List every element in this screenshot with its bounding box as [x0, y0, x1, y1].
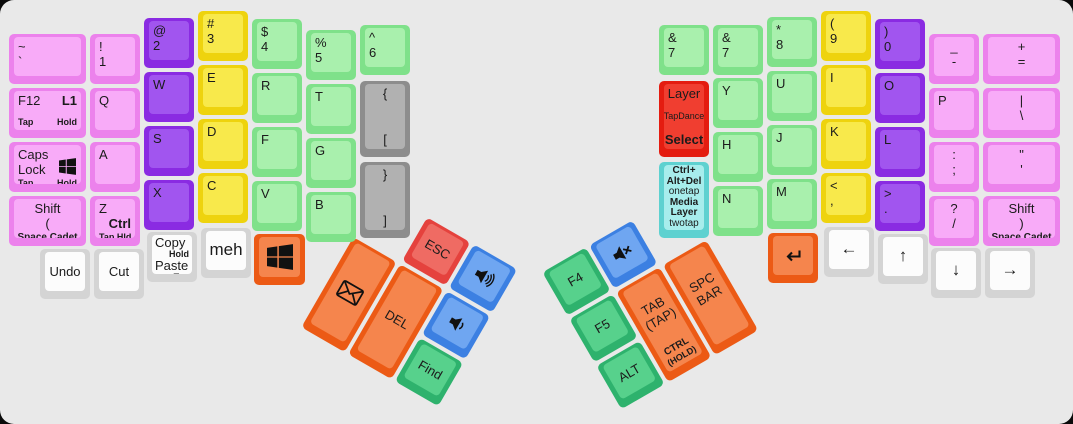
- key-o[interactable]: O: [875, 73, 925, 123]
- key-label: Ctrl: [109, 216, 131, 231]
- key-label: Shift: [1008, 201, 1034, 216]
- key-label-line: ALT: [612, 358, 647, 387]
- key-label: Tap: [18, 117, 33, 128]
- key-label: -: [952, 54, 956, 69]
- key-label-line: ←: [833, 239, 865, 259]
- key-label: +: [1018, 39, 1026, 54]
- key-exclamation-1[interactable]: !1: [90, 34, 140, 84]
- key-label-line: S: [153, 131, 185, 146]
- key-cut[interactable]: Cut: [94, 249, 144, 299]
- key-label: [: [383, 132, 387, 147]
- mail-icon: [331, 273, 369, 311]
- key-k[interactable]: K: [821, 119, 871, 169]
- key-label-line: 4: [261, 39, 293, 54]
- key-label: ↓: [952, 260, 961, 280]
- key-label-line: DEL: [379, 305, 414, 334]
- key-label: E: [207, 70, 216, 85]
- key-label-line: ↓: [940, 260, 972, 280]
- windows-icon: [59, 158, 76, 175]
- key-label: S: [153, 131, 162, 146]
- key-label-line: I: [830, 70, 862, 85]
- key-label-line: meh: [210, 240, 242, 260]
- key-label-line: Find: [413, 355, 448, 384]
- key-amp-7[interactable]: &7: [713, 25, 763, 75]
- key-label-line: [437, 305, 477, 342]
- key-label: .: [884, 201, 888, 216]
- key-label-line: Ctrl+: [667, 166, 701, 177]
- key-label-line: 6: [369, 45, 401, 60]
- key-label-line: ^: [369, 30, 401, 45]
- key-label-line: :: [938, 147, 970, 162]
- key-left-brace-bracket[interactable]: {[: [360, 81, 410, 157]
- key-hash-3[interactable]: #3: [198, 11, 248, 61]
- enter-icon: [781, 244, 805, 268]
- key-label: ~: [18, 39, 26, 54]
- key-label-line: K: [830, 124, 862, 139]
- key-asterisk-8[interactable]: *8: [767, 17, 817, 67]
- key-label-line: 5: [315, 50, 347, 65]
- key-label-line: Copy: [155, 236, 189, 250]
- key-label: 4: [261, 39, 268, 54]
- key-label: Caps: [18, 147, 48, 162]
- key-label: T: [315, 89, 323, 104]
- key-label-line: ": [992, 147, 1051, 162]
- key-label-line: [329, 272, 371, 312]
- key-label: }: [383, 167, 387, 182]
- key-label: Q: [99, 93, 109, 108]
- key-label: 2: [153, 38, 160, 53]
- key-f[interactable]: F: [252, 127, 302, 177]
- key-label: G: [315, 143, 325, 158]
- key-h[interactable]: H: [713, 132, 763, 182]
- key-u[interactable]: U: [767, 71, 817, 121]
- key-label: 6: [369, 45, 376, 60]
- key-label-line: Select: [668, 132, 700, 147]
- key-label-line: Undo: [49, 264, 81, 279]
- key-label-line: →: [994, 260, 1026, 280]
- key-label-line: twotap: [667, 219, 701, 230]
- key-label: Tap: [18, 178, 33, 184]
- key-p[interactable]: P: [929, 88, 979, 138]
- key-label: [722, 320, 733, 335]
- key-label: :: [952, 147, 956, 162]
- key-label-line: #: [207, 16, 239, 31]
- key-label: Space Cadet: [17, 232, 77, 238]
- key-label: ALT: [616, 361, 643, 386]
- key-label: Space Cadet: [991, 232, 1051, 238]
- key-label: {: [383, 86, 387, 101]
- key-label-line: H: [722, 137, 754, 152]
- key-label-line: Tap Hld: [99, 232, 131, 238]
- key-label-line: (: [18, 216, 77, 231]
- key-label-line: !: [99, 39, 131, 54]
- key-label-line: N: [722, 191, 754, 206]
- key-r[interactable]: R: [252, 73, 302, 123]
- key-label-line: .: [884, 201, 916, 216]
- key-d[interactable]: D: [198, 119, 248, 169]
- key-y[interactable]: Y: [713, 78, 763, 128]
- key-label-line: [464, 258, 504, 295]
- key-label: %: [315, 35, 327, 50]
- key-j[interactable]: J: [767, 125, 817, 175]
- key-amp-7-inner[interactable]: &7: [659, 25, 709, 75]
- key-label: ←: [841, 239, 858, 259]
- key-right-brace-bracket[interactable]: }]: [360, 162, 410, 238]
- key-label-line: >: [884, 186, 916, 201]
- key-label: Y: [722, 83, 731, 98]
- key-label-line: Space Cadet: [18, 232, 77, 238]
- key-percent-5[interactable]: %5: [306, 30, 356, 80]
- key-label: D: [207, 124, 216, 139]
- key-label-line: -: [938, 54, 970, 69]
- key-label-line: Space Cadet: [992, 232, 1051, 238]
- key-label: Undo: [49, 264, 80, 279]
- key-label: !: [99, 39, 103, 54]
- key-label: ?: [950, 201, 957, 216]
- key-label-line: (: [830, 16, 862, 31]
- key-copy-paste[interactable]: CopyHoldPasteTap: [147, 232, 197, 282]
- key-label: ↑: [899, 246, 908, 266]
- key-n[interactable]: N: [713, 186, 763, 236]
- key-label: 7: [722, 45, 729, 60]
- key-l[interactable]: L: [875, 127, 925, 177]
- key-label-line: ESC: [420, 235, 455, 264]
- key-label-line: A: [99, 147, 131, 162]
- key-label-line: 2: [153, 38, 185, 53]
- key-win-left[interactable]: [254, 234, 305, 285]
- key-label: >: [884, 186, 892, 201]
- key-label-line: B: [315, 197, 347, 212]
- key-label-line: T: [315, 89, 347, 104]
- key-label: _: [950, 39, 957, 54]
- key-label-line: &: [722, 30, 754, 45]
- key-label-line: <: [830, 178, 862, 193]
- key-label: `: [18, 54, 22, 69]
- key-label-line: +: [992, 39, 1051, 54]
- key-label: #: [207, 16, 214, 31]
- key-label-line: |: [992, 93, 1051, 108]
- key-capslock-win[interactable]: CapsLockTapHold: [9, 142, 86, 192]
- key-label-line: V: [261, 186, 293, 201]
- key-label-line: [777, 244, 809, 268]
- key-label: Tap: [174, 273, 189, 274]
- key-label: =: [1018, 54, 1026, 69]
- key-caret-6[interactable]: ^6: [360, 25, 410, 75]
- windows-icon: [267, 244, 293, 270]
- key-label: Hold: [57, 178, 77, 184]
- key-label: &: [668, 30, 677, 45]
- mute-icon: [606, 236, 639, 269]
- key-label-line: F4: [558, 265, 593, 294]
- key-label: I: [830, 70, 834, 85]
- key-label: 5: [315, 50, 322, 65]
- key-w[interactable]: W: [144, 72, 194, 122]
- key-label: P: [938, 93, 947, 108]
- key-label-line: Layer: [668, 86, 700, 101]
- key-arrow-left[interactable]: ←: [824, 227, 874, 277]
- key-label-line: ;: [938, 162, 970, 177]
- key-label-line: ': [992, 162, 1051, 177]
- key-greater-period[interactable]: >.: [875, 181, 925, 231]
- key-label-line: [710, 313, 745, 342]
- key-label: M: [776, 184, 787, 199]
- key-label: ]: [383, 213, 387, 228]
- key-label: 8: [776, 37, 783, 52]
- key-label-line: F5: [585, 311, 620, 340]
- key-label: ESC: [422, 236, 453, 263]
- key-label-line: 3: [207, 31, 239, 46]
- key-label-line: 0: [884, 39, 916, 54]
- key-label-line: Q: [99, 93, 131, 108]
- key-label: 0: [884, 39, 891, 54]
- key-label-line: ~: [18, 39, 77, 54]
- key-arrow-down[interactable]: ↓: [931, 248, 981, 298]
- key-label: \: [1020, 108, 1024, 123]
- key-rparen-0[interactable]: )0: [875, 19, 925, 69]
- key-undo[interactable]: Undo: [40, 249, 90, 299]
- key-label: Shift: [34, 201, 60, 216]
- key-label: F5: [592, 316, 613, 337]
- key-label: /: [952, 216, 956, 231]
- key-label-line: E: [207, 70, 239, 85]
- key-b[interactable]: B: [306, 192, 356, 242]
- key-label-line: Paste: [155, 259, 189, 273]
- key-layer-tapdance-select[interactable]: LayerTapDanceSelect: [659, 81, 709, 157]
- key-label-line: `: [18, 54, 77, 69]
- key-label: |: [1020, 93, 1023, 108]
- key-label-line: Shift: [992, 201, 1051, 216]
- key-label: ): [1019, 216, 1023, 231]
- key-label-line: R: [261, 78, 293, 93]
- key-label: 3: [207, 31, 214, 46]
- key-quote[interactable]: "': [983, 142, 1060, 192]
- key-label: Copy: [155, 236, 185, 250]
- key-label-line: C: [207, 178, 239, 193]
- key-label-line: TapDance: [668, 111, 700, 122]
- key-label-line: 9: [830, 31, 862, 46]
- key-arrow-right[interactable]: →: [985, 248, 1035, 298]
- key-label: Cut: [109, 264, 129, 279]
- key-label: @: [153, 23, 166, 38]
- key-label-line: Z: [99, 201, 131, 216]
- key-enter[interactable]: [768, 233, 818, 283]
- key-label-line: [602, 234, 642, 271]
- key-label-line: O: [884, 78, 916, 93]
- key-label: (: [45, 216, 49, 231]
- key-colon-semicolon[interactable]: :;: [929, 142, 979, 192]
- key-underscore-minus[interactable]: _-: [929, 34, 979, 84]
- key-label-line: Ctrl: [99, 216, 131, 231]
- key-label-line: Tap: [155, 273, 189, 274]
- key-label-line: $: [261, 24, 293, 39]
- key-label: O: [884, 78, 894, 93]
- key-label: F12: [18, 93, 40, 108]
- key-q[interactable]: Q: [90, 88, 140, 138]
- key-question-slash[interactable]: ?/: [929, 196, 979, 246]
- key-label: Paste: [155, 259, 188, 273]
- key-label-line: &: [668, 30, 700, 45]
- key-label: F4: [565, 269, 586, 290]
- key-label: Tap Hld: [99, 232, 131, 238]
- key-label-line: @: [153, 23, 185, 38]
- key-label: Z: [99, 201, 107, 216]
- key-label: ,: [830, 193, 834, 208]
- key-label: L1: [62, 93, 77, 108]
- key-m[interactable]: M: [767, 179, 817, 229]
- key-label-line: ?: [938, 201, 970, 216]
- key-label-line: J: [776, 130, 808, 145]
- key-arrow-up[interactable]: ↑: [878, 234, 928, 284]
- key-label-line: \: [992, 108, 1051, 123]
- key-label-line: TapHold: [18, 178, 77, 184]
- key-label: Find: [416, 357, 446, 383]
- key-label: 9: [830, 31, 837, 46]
- key-label: K: [830, 124, 839, 139]
- key-t[interactable]: T: [306, 84, 356, 134]
- key-label: TapDance: [664, 111, 704, 122]
- key-label: 7: [668, 45, 675, 60]
- key-label-line: ↑: [887, 246, 919, 266]
- key-label-line: 7: [722, 45, 754, 60]
- key-label: ): [884, 24, 888, 39]
- key-label: F: [261, 132, 269, 147]
- key-plus-equals[interactable]: +=: [983, 34, 1060, 84]
- key-label-line: L: [884, 132, 916, 147]
- key-label: DEL: [382, 307, 412, 333]
- key-e[interactable]: E: [198, 65, 248, 115]
- key-pipe-backslash[interactable]: |\: [983, 88, 1060, 138]
- key-label-line: /: [938, 216, 970, 231]
- key-label: B: [315, 197, 324, 212]
- key-label-line: %: [315, 35, 347, 50]
- key-label: L: [884, 132, 891, 147]
- key-label: twotap: [669, 219, 698, 230]
- key-label: Ctrl+: [672, 166, 695, 177]
- key-label: (: [830, 16, 834, 31]
- key-label: &: [722, 30, 731, 45]
- key-v[interactable]: V: [252, 181, 302, 231]
- key-label-line: ): [884, 24, 916, 39]
- key-label-line: TapHold: [18, 117, 77, 128]
- key-label-line: F12L1: [18, 93, 77, 108]
- key-g[interactable]: G: [306, 138, 356, 188]
- key-at-2[interactable]: @2: [144, 18, 194, 68]
- key-label-line: U: [776, 76, 808, 91]
- key-c[interactable]: C: [198, 173, 248, 223]
- key-label: C: [207, 178, 216, 193]
- key-left-shift[interactable]: Shift(Space Cadet: [9, 196, 86, 246]
- key-label: <: [830, 178, 838, 193]
- key-label: Layer: [668, 86, 701, 101]
- key-label-line: {: [369, 86, 401, 101]
- key-label-line: 1: [99, 54, 131, 69]
- key-label-line: [: [369, 132, 401, 147]
- key-label-line: F: [261, 132, 293, 147]
- key-label: R: [261, 78, 270, 93]
- key-label-line: Cut: [103, 264, 135, 279]
- key-label-line: Y: [722, 83, 754, 98]
- key-i[interactable]: I: [821, 65, 871, 115]
- key-label-line: Shift: [18, 201, 77, 216]
- key-x[interactable]: X: [144, 180, 194, 230]
- key-label-line: P: [938, 93, 970, 108]
- key-label-line: =: [992, 54, 1051, 69]
- key-label: →: [1002, 260, 1019, 280]
- key-label-line: G: [315, 143, 347, 158]
- key-label: V: [261, 186, 270, 201]
- key-label: ;: [952, 162, 956, 177]
- key-s[interactable]: S: [144, 126, 194, 176]
- key-label-line: }: [369, 167, 401, 182]
- key-label: ': [1020, 162, 1022, 177]
- key-label: ": [1019, 147, 1024, 162]
- key-label-line: W: [153, 77, 185, 92]
- key-label: J: [776, 130, 783, 145]
- key-label: *: [776, 22, 781, 37]
- key-label-line: _: [938, 39, 970, 54]
- key-label: $: [261, 24, 268, 39]
- key-f12-l1[interactable]: F12L1TapHold: [9, 88, 86, 138]
- key-label-line: ,: [830, 193, 862, 208]
- key-label: Select: [665, 132, 703, 147]
- key-less-comma[interactable]: <,: [821, 173, 871, 223]
- key-label-line: [263, 244, 296, 270]
- key-ctrl-alt-del-media-layer[interactable]: Ctrl+Alt+DelonetapMediaLayertwotap: [659, 162, 709, 238]
- key-label-line: 7: [668, 45, 700, 60]
- key-z-ctrl[interactable]: ZCtrlTap Hld: [90, 196, 140, 246]
- key-label: Lock: [18, 162, 45, 177]
- key-label: W: [153, 77, 165, 92]
- key-label-line: D: [207, 124, 239, 139]
- vol-up-icon: [468, 260, 501, 293]
- key-label-line: ]: [369, 213, 401, 228]
- key-label-line: *: [776, 22, 808, 37]
- key-right-shift[interactable]: Shift)Space Cadet: [983, 196, 1060, 246]
- key-label: U: [776, 76, 785, 91]
- key-label-line: 8: [776, 37, 808, 52]
- keyboard-layout-board: ESCDELFind F4F5TAB(TAP)CTRL(HOLD)SPCBAR …: [0, 0, 1073, 424]
- key-label-line: X: [153, 185, 185, 200]
- key-label-line: M: [776, 184, 808, 199]
- key-label: ^: [369, 30, 375, 45]
- key-label: 1: [99, 54, 106, 69]
- key-label: Hold: [57, 117, 77, 128]
- key-label: A: [99, 147, 108, 162]
- key-dollar-4[interactable]: $4: [252, 19, 302, 69]
- key-label: N: [722, 191, 731, 206]
- key-label: X: [153, 185, 162, 200]
- key-label: meh: [209, 240, 242, 260]
- key-meh[interactable]: meh: [201, 228, 251, 278]
- vol-down-icon: [441, 307, 474, 340]
- key-a[interactable]: A: [90, 142, 140, 192]
- key-lparen-9[interactable]: (9: [821, 11, 871, 61]
- key-label-line: ): [992, 216, 1051, 231]
- key-label: H: [722, 137, 731, 152]
- key-tilde[interactable]: ~`: [9, 34, 86, 84]
